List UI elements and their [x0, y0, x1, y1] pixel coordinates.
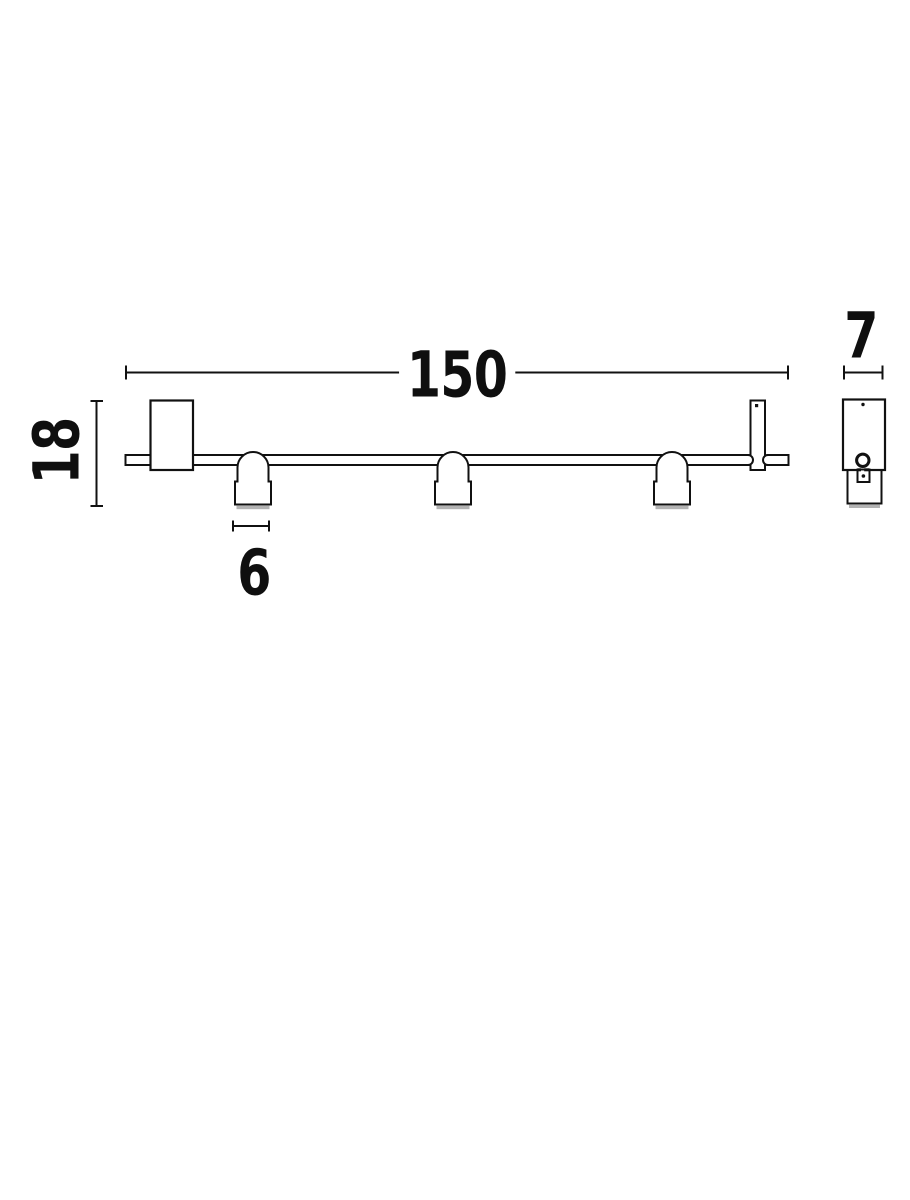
dim-value-length: 150	[399, 344, 515, 407]
spot-head-2	[435, 452, 471, 509]
canopy-block-front	[151, 401, 194, 471]
bracket-rod-arc-right	[763, 455, 768, 465]
dim-value-height: 18	[26, 418, 89, 485]
dim-value-depth: 7	[844, 305, 877, 368]
drawing-canvas: 150 18 6 7	[0, 0, 910, 1200]
bracket-screw-dot	[755, 404, 758, 407]
bracket-rod-arc-left	[748, 455, 753, 465]
spot-head-2-shadow	[437, 506, 470, 509]
spot-head-3-shadow	[656, 506, 689, 509]
dim-line-head-width	[233, 521, 269, 532]
side-connector-dot	[862, 474, 866, 478]
side-screw-dot	[861, 403, 864, 406]
side-connector-mark-right	[864, 468, 869, 471]
spot-head-3	[654, 452, 690, 509]
spot-head-1-shadow	[237, 506, 270, 509]
side-ring	[857, 454, 869, 466]
fixture-dimension-drawing	[0, 0, 910, 1200]
side-view	[843, 400, 885, 509]
dim-value-head-width: 6	[237, 542, 270, 605]
spot-head-1	[235, 452, 271, 509]
side-head-shadow	[849, 505, 880, 508]
front-view	[126, 401, 789, 510]
side-connector-mark-left	[858, 468, 862, 471]
